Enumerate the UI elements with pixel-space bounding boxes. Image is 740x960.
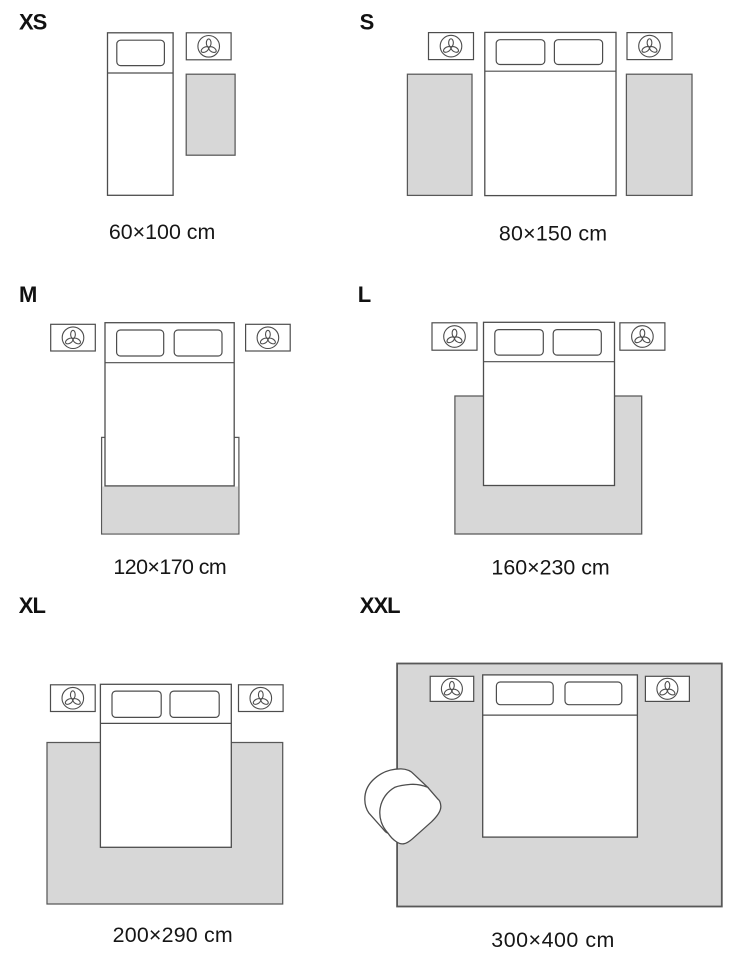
svg-text:80×150 cm: 80×150 cm (499, 222, 607, 246)
svg-text:S: S (360, 9, 374, 34)
svg-text:L: L (358, 282, 371, 307)
svg-text:XXL: XXL (360, 593, 400, 618)
svg-text:200×290 cm: 200×290 cm (113, 923, 233, 947)
svg-text:60×100 cm: 60×100 cm (109, 220, 215, 244)
svg-text:XS: XS (19, 9, 47, 34)
svg-text:160×230 cm: 160×230 cm (491, 556, 609, 580)
svg-text:XL: XL (19, 593, 46, 618)
svg-text:300×400 cm: 300×400 cm (491, 928, 615, 952)
svg-text:M: M (19, 282, 36, 307)
svg-text:120×170 cm: 120×170 cm (113, 555, 226, 579)
